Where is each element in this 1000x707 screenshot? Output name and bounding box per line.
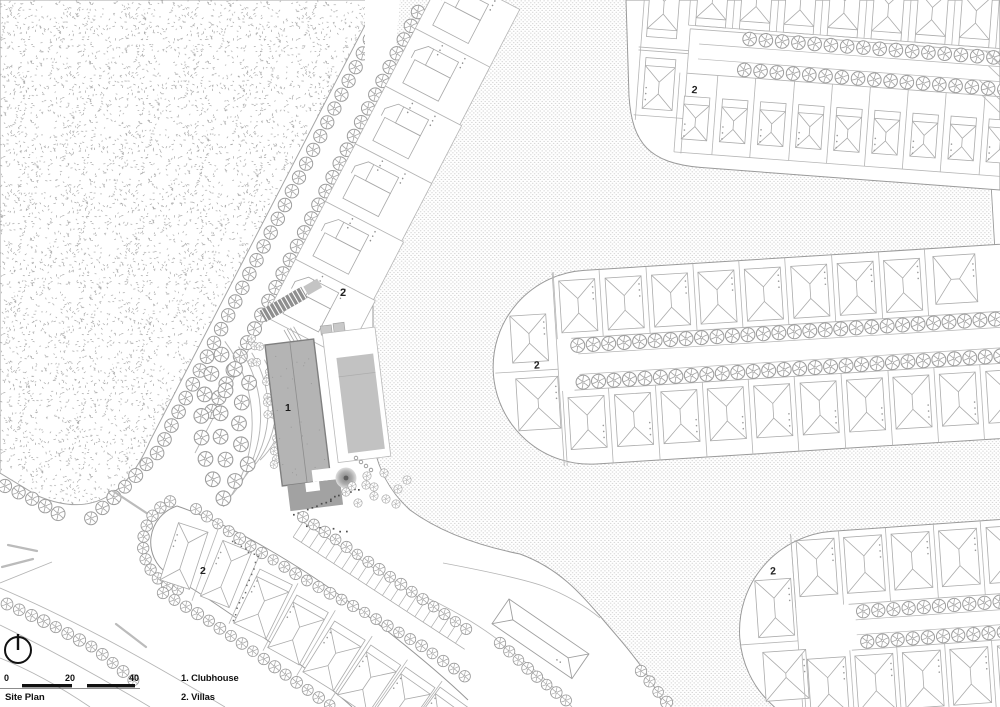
svg-text:2: 2 [534,359,541,371]
svg-text:2. Villas: 2. Villas [181,691,215,702]
svg-text:2: 2 [691,84,698,96]
svg-text:1. Clubhouse: 1. Clubhouse [181,672,239,683]
svg-text:1: 1 [285,402,291,414]
svg-text:0: 0 [4,673,9,683]
svg-text:Site Plan: Site Plan [5,692,45,703]
svg-text:2: 2 [770,565,777,577]
svg-text:40: 40 [129,673,139,683]
svg-text:2: 2 [340,287,346,299]
svg-text:2: 2 [200,565,206,577]
svg-text:20: 20 [65,673,75,683]
